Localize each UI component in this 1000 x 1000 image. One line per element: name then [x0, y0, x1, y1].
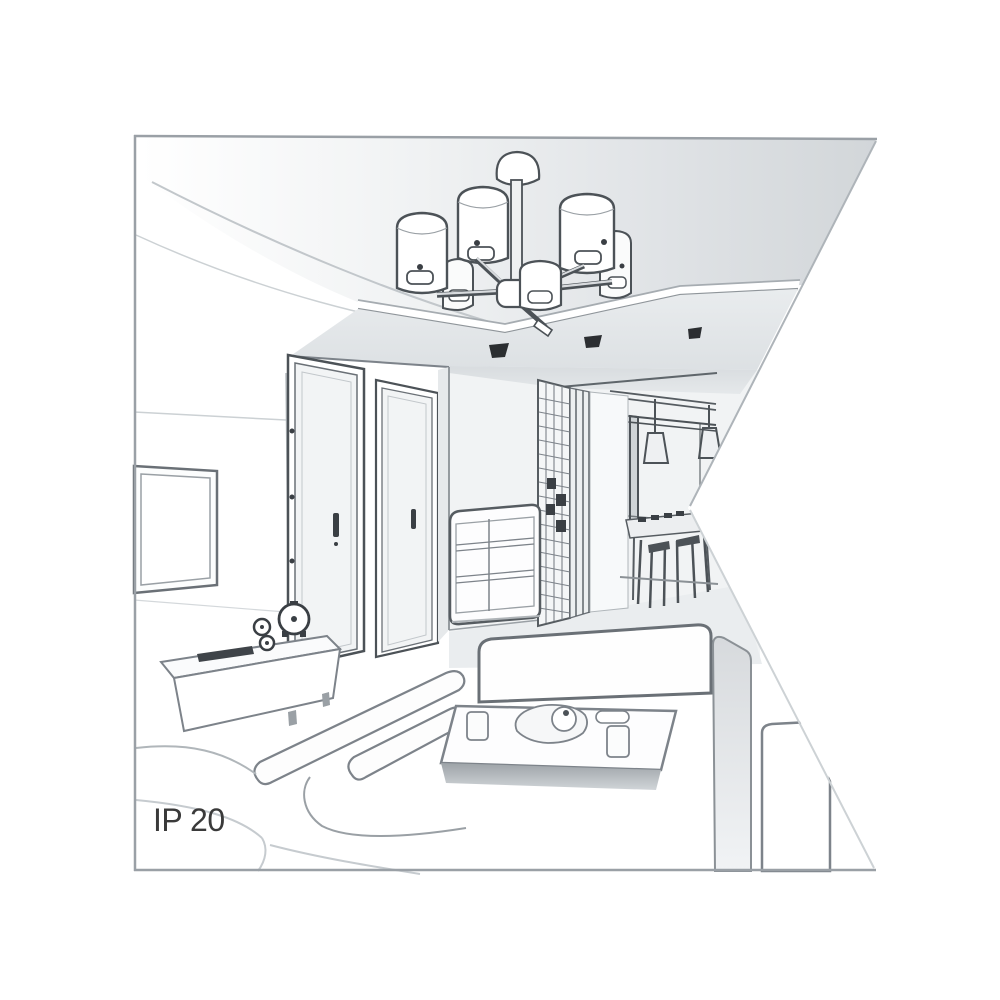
door-handle-icon [411, 509, 416, 529]
door-handle-icon [333, 513, 339, 537]
drawer-cabinet [450, 505, 540, 624]
wall-tv [134, 466, 217, 593]
wardrobe-shelf [538, 380, 628, 626]
cup-icon [607, 726, 629, 757]
cup-icon [467, 712, 488, 740]
doors [288, 355, 449, 668]
ip-rating-label: IP 20 [153, 802, 225, 839]
speakers-icon [254, 619, 274, 650]
dish-icon [596, 711, 629, 723]
room-sketch [0, 0, 1000, 1000]
serving-plate-icon [516, 705, 588, 743]
bowl-icon [552, 707, 576, 731]
door-right [376, 380, 438, 657]
left-wall [134, 373, 289, 658]
product-illustration: IP 20 [0, 0, 1000, 1000]
coffee-table [441, 705, 676, 790]
